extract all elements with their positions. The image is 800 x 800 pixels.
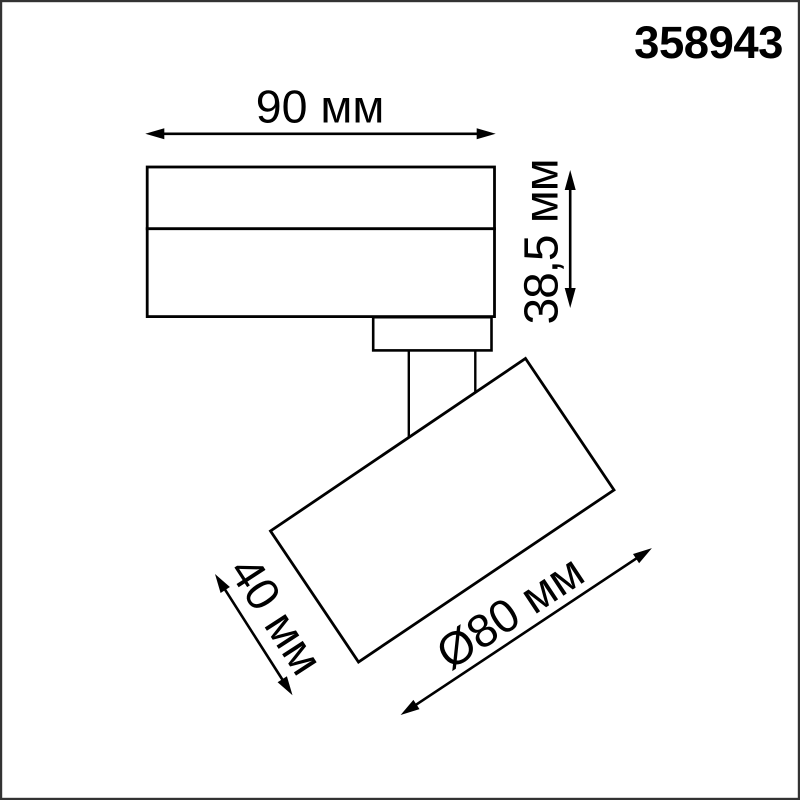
- svg-text:90 мм: 90 мм: [256, 81, 385, 133]
- svg-text:38,5 мм: 38,5 мм: [516, 159, 569, 324]
- svg-text:358943: 358943: [634, 17, 783, 68]
